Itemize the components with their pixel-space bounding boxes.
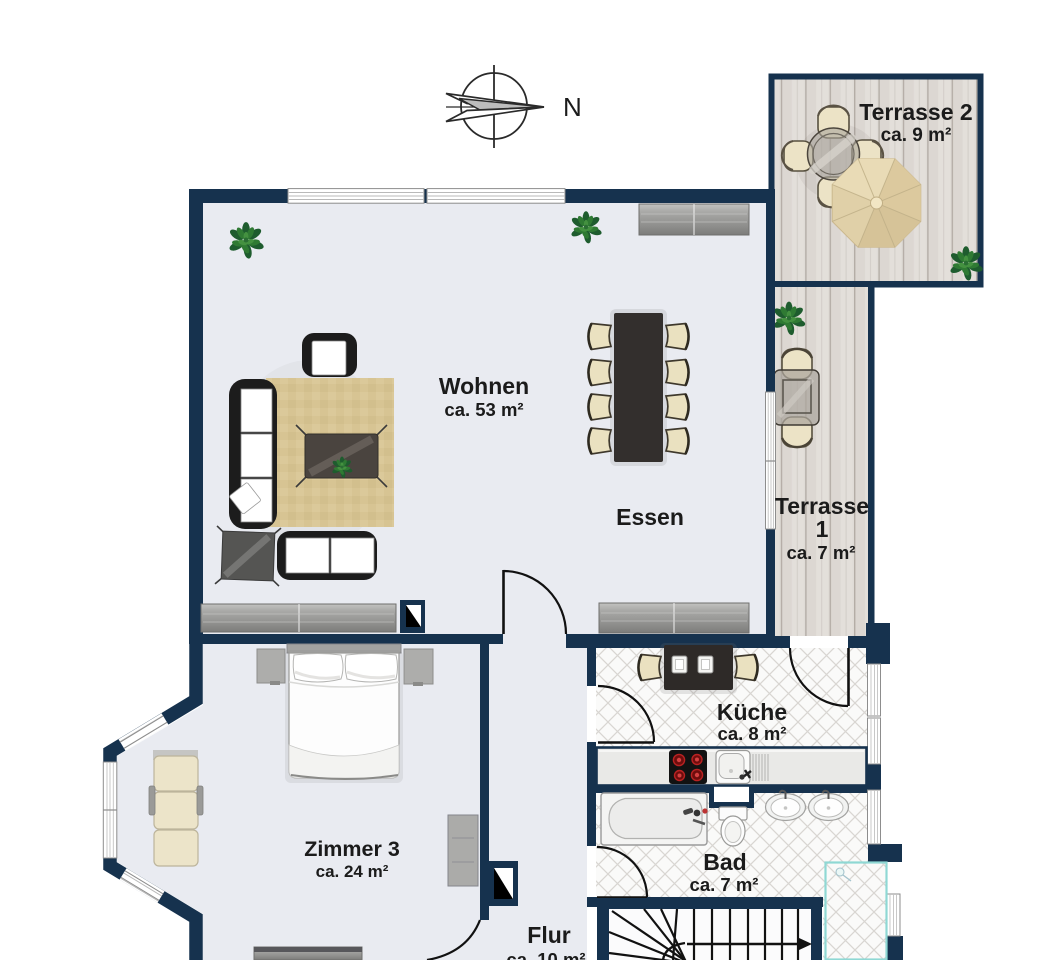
svg-text:Essen: Essen <box>616 504 684 530</box>
svg-text:ca. 10 m²: ca. 10 m² <box>506 949 585 960</box>
svg-text:Küche: Küche <box>717 699 787 725</box>
svg-text:ca. 24 m²: ca. 24 m² <box>316 862 389 881</box>
svg-text:1: 1 <box>816 516 829 542</box>
svg-text:Flur: Flur <box>527 922 570 948</box>
svg-text:Zimmer 3: Zimmer 3 <box>304 837 400 861</box>
svg-text:ca. 8 m²: ca. 8 m² <box>718 723 787 744</box>
svg-text:ca. 7 m²: ca. 7 m² <box>787 542 856 563</box>
svg-text:Wohnen: Wohnen <box>439 373 529 399</box>
svg-text:N: N <box>563 92 582 122</box>
svg-text:ca. 53 m²: ca. 53 m² <box>444 399 523 420</box>
svg-text:ca. 7 m²: ca. 7 m² <box>690 874 759 895</box>
svg-text:Bad: Bad <box>703 849 746 875</box>
svg-text:ca. 9 m²: ca. 9 m² <box>881 125 952 146</box>
svg-text:Terrasse 2: Terrasse 2 <box>859 99 972 125</box>
